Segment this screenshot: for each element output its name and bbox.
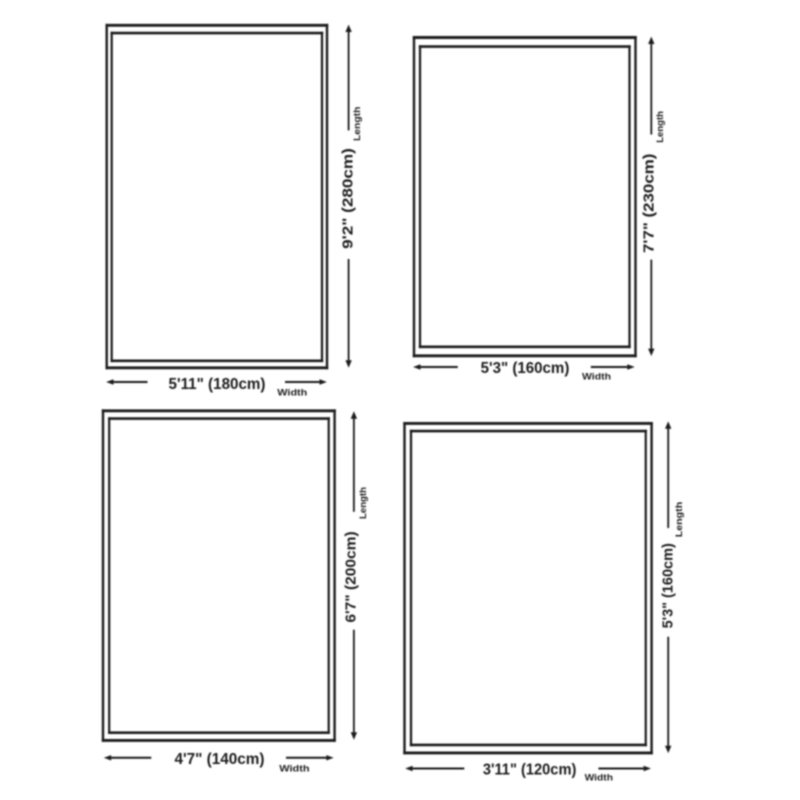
svg-text:Length: Length [655,111,665,143]
svg-text:7'7" (230cm): 7'7" (230cm) [641,154,658,253]
svg-text:5'11" (180cm): 5'11" (180cm) [169,376,266,393]
svg-text:6'7" (200cm): 6'7" (200cm) [342,531,359,622]
svg-text:9'2" (280cm): 9'2" (280cm) [340,148,357,249]
svg-text:Length: Length [358,487,368,519]
svg-text:Length: Length [352,107,362,142]
svg-text:4'7" (140cm): 4'7" (140cm) [175,751,265,768]
svg-text:Width: Width [277,388,307,399]
svg-text:Width: Width [582,372,611,383]
svg-text:5'3" (160cm): 5'3" (160cm) [481,360,570,377]
svg-text:3'11" (120cm): 3'11" (120cm) [483,762,577,779]
svg-text:Length: Length [674,502,684,537]
svg-text:Width: Width [279,764,310,775]
svg-text:5'3" (160cm): 5'3" (160cm) [660,543,677,628]
svg-text:Width: Width [585,773,614,784]
